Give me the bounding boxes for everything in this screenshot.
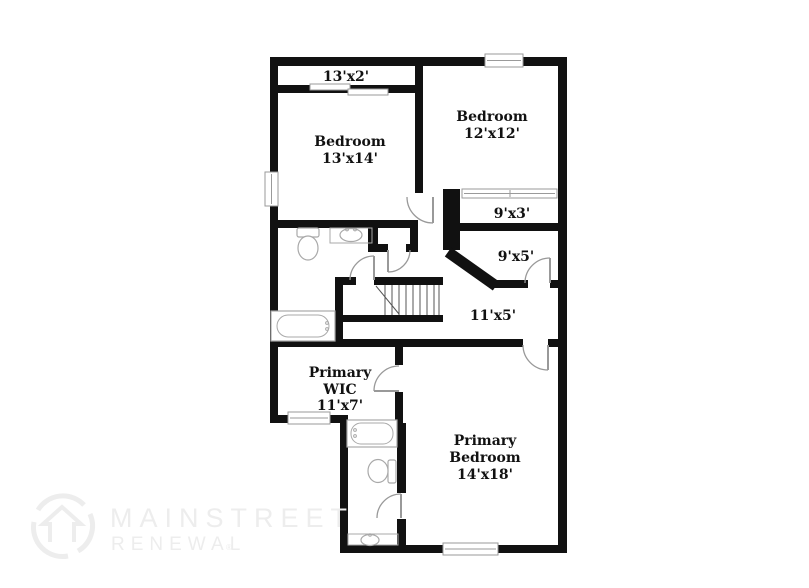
wall-9x5-stub — [550, 280, 558, 288]
wall-stair-left — [335, 277, 343, 347]
floorplan-image: 13'x2' Bedroom 13'x14' Bedroom 12'x12' 9… — [0, 0, 809, 588]
label-hall-11x5: 11'x5' — [470, 308, 516, 324]
mainstreet-logo-icon — [33, 496, 92, 557]
stairs — [376, 285, 439, 315]
stair-break-line — [376, 286, 399, 314]
door-arc-hall-bath — [350, 256, 374, 280]
toilet-bowl — [368, 460, 388, 483]
bypass-closet13-panel2 — [348, 89, 388, 95]
door-arc-wc — [388, 250, 410, 272]
bathtub-hall-bath — [271, 311, 335, 341]
label-primary-line3: 14'x18' — [457, 467, 513, 483]
wall-left-upper — [270, 57, 278, 423]
wall-wic-right-b — [395, 392, 403, 423]
wall-diagonal — [448, 252, 496, 286]
door-arc-primary-bath — [377, 494, 401, 518]
label-closet-9x3: 9'x3' — [494, 206, 530, 222]
door-arc-wic — [374, 366, 399, 391]
logo-swirl-arc2 — [78, 514, 93, 551]
door-arc-bedroom12 — [407, 197, 433, 223]
watermark-logo: MAINSTREET RENEWAL ® — [33, 496, 354, 557]
wall-wc-bottom-b — [406, 244, 418, 252]
wall-divider-a — [397, 423, 406, 493]
label-bedroom12-size: 12'x12' — [464, 126, 520, 142]
floorplan-svg: 13'x2' Bedroom 13'x14' Bedroom 12'x12' 9… — [0, 0, 809, 588]
wall-pillar — [443, 189, 460, 250]
wall-wic-right-a — [395, 339, 403, 365]
toilet-bowl — [298, 236, 318, 260]
wall-stair-bottom — [343, 315, 443, 322]
watermark-brand-line1: MAINSTREET — [110, 503, 354, 533]
label-bedroom13-name: Bedroom — [314, 134, 386, 150]
label-closet-13x2: 13'x2' — [323, 69, 369, 85]
sink-primary — [348, 534, 398, 546]
label-wic-line2: WIC — [322, 382, 356, 398]
label-primary-line1: Primary — [454, 433, 517, 449]
label-bedroom12-name: Bedroom — [456, 109, 528, 125]
toilet-primary — [368, 460, 396, 484]
bathtub-primary — [347, 420, 397, 447]
door-arc-primary-bedroom — [523, 345, 548, 370]
toilet-tank — [388, 460, 396, 483]
label-closet-9x5: 9'x5' — [498, 249, 534, 265]
toilet-hall-bath — [297, 228, 319, 260]
walls — [270, 57, 567, 553]
wall-between-bedrooms — [415, 57, 423, 193]
label-wic-line1: Primary — [309, 365, 372, 381]
label-primary-line2: Bedroom — [449, 450, 521, 466]
wall-hallway-stub — [548, 339, 558, 347]
watermark-reg-mark: ® — [226, 543, 232, 552]
wall-wc-bottom-a — [368, 244, 388, 252]
logo-house-arrow — [43, 507, 81, 542]
wall-stair-top-b — [374, 277, 443, 285]
sink-hall-bath — [330, 228, 372, 243]
wall-9x5-bottom — [493, 280, 528, 288]
tub-outer — [347, 420, 397, 447]
label-wic-line3: 11'x7' — [317, 398, 363, 414]
label-bedroom13-size: 13'x14' — [322, 151, 378, 167]
sink-basin — [340, 229, 362, 242]
wall-9x3-bottom — [460, 223, 558, 231]
wall-bed13-bottom — [270, 220, 368, 228]
wall-right — [558, 57, 567, 553]
